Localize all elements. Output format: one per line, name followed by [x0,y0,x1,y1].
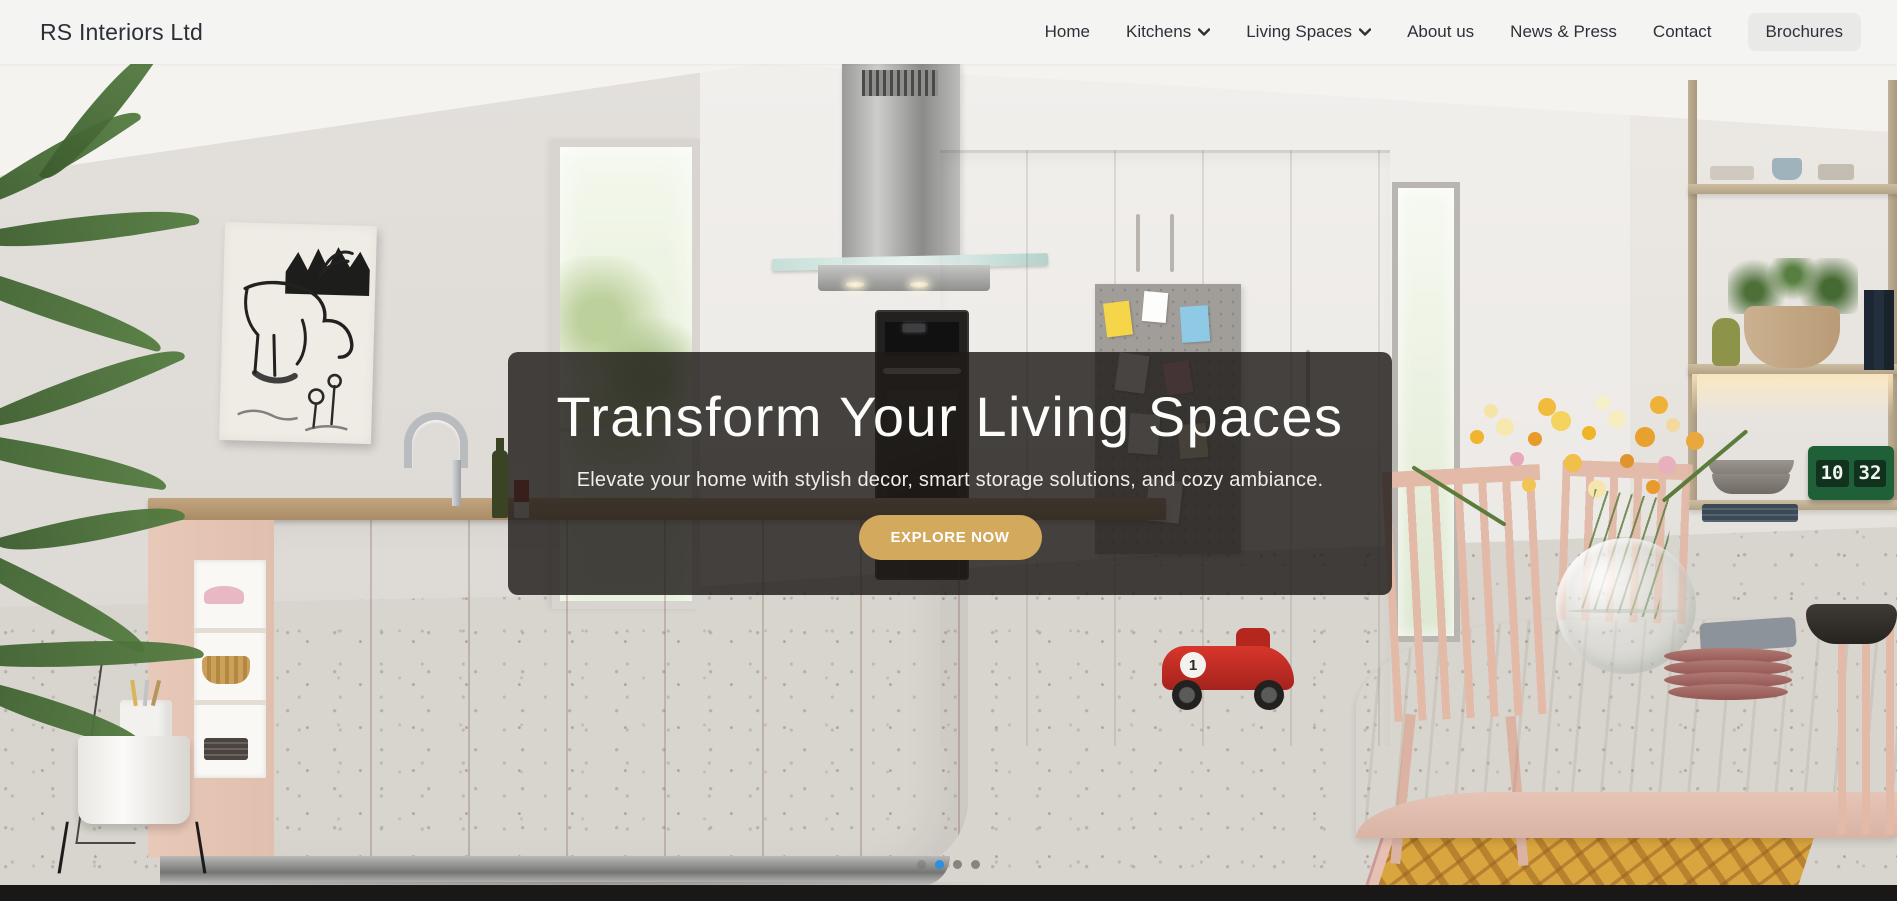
next-section-edge [0,885,1897,901]
nav-item-label: Living Spaces [1246,22,1352,42]
plate [1668,684,1788,700]
chevron-down-icon [1359,28,1371,36]
nav-item-home[interactable]: Home [1045,22,1090,42]
bowl-stack [1708,460,1794,504]
top-navigation-bar: RS Interiors Ltd Home Kitchens Living Sp… [0,0,1897,64]
hood-light [910,281,928,288]
main-nav: Home Kitchens Living Spaces About us New… [1045,13,1861,51]
toy-car-wheel [1254,680,1284,710]
nav-item-contact[interactable]: Contact [1653,22,1712,42]
hero-subheading: Elevate your home with stylish decor, sm… [508,469,1392,492]
faucet-stem [452,460,461,506]
stacked-plates [1710,166,1754,180]
blue-plate-stack [1702,504,1798,522]
oven-display [903,324,925,332]
hero-overlay-panel: Transform Your Living Spaces Elevate you… [508,352,1392,595]
nav-item-label: Brochures [1766,22,1843,42]
nav-item-kitchens[interactable]: Kitchens [1126,22,1210,42]
carousel-dot-active[interactable] [935,860,944,869]
under-shelf-light [1692,374,1893,416]
shelf-board [1688,184,1897,194]
white-plant-pot [78,736,190,824]
toy-car-number-badge: 1 [1180,652,1206,678]
palm-leaf [0,534,155,654]
chevron-down-icon [1198,28,1210,36]
carousel-dot[interactable] [971,860,980,869]
hood-light [846,281,864,288]
cabinet-top-seam [940,150,1390,153]
hero-section: 10 32 1 [0,64,1897,885]
carousel-dot[interactable] [953,860,962,869]
cabinet-handle [1170,214,1174,272]
explore-now-button[interactable]: EXPLORE NOW [859,515,1042,560]
palm-leaf [0,194,200,263]
shelf-post [1688,80,1697,510]
pinned-card [1103,301,1133,338]
nav-item-news-press[interactable]: News & Press [1510,22,1617,42]
palm-leaf [0,428,170,491]
nav-item-label: Kitchens [1126,22,1191,42]
blue-cup [1772,158,1802,180]
nav-item-about-us[interactable]: About us [1407,22,1474,42]
palm-leaf [0,490,186,568]
cabinet-handle [1136,214,1140,272]
island-floor-shadow [150,882,1010,885]
nav-item-label: Contact [1653,22,1712,42]
brand-logo[interactable]: RS Interiors Ltd [40,19,203,46]
clock-hours: 10 [1816,460,1849,487]
palm-leaf [39,64,162,193]
hood-vent-grille [862,70,938,96]
flower-bouquet [1470,430,1484,444]
toy-car-wheel [1172,680,1202,710]
wood-shelving-unit: 10 32 [1688,80,1897,510]
frog-plush-toy [1712,318,1740,366]
nav-item-living-spaces[interactable]: Living Spaces [1246,22,1371,42]
red-toy-car: 1 [1162,624,1300,720]
carousel-dots [0,860,1897,869]
nav-item-label: Home [1045,22,1090,42]
dark-bowls [1806,604,1897,644]
stacked-plates [1818,164,1854,180]
carousel-dot[interactable] [917,860,926,869]
spindle-chair-partial [1838,624,1897,834]
palm-leaf [0,256,168,353]
chair-spindles [1838,624,1897,834]
terracotta-pot [1744,306,1840,368]
nav-item-brochures[interactable]: Brochures [1748,13,1861,51]
mauve-plate-stack [1664,648,1792,702]
pinned-card [1142,291,1169,323]
clock-minutes: 32 [1854,460,1887,487]
nav-item-label: News & Press [1510,22,1617,42]
pinned-card [1180,305,1210,343]
olive-oil-bottle [492,450,508,518]
gray-bowl [1712,474,1790,494]
dining-table-edge [1356,792,1897,838]
hero-heading: Transform Your Living Spaces [508,386,1392,448]
books [1864,290,1894,370]
flip-clock: 10 32 [1808,446,1894,500]
nav-item-label: About us [1407,22,1474,42]
